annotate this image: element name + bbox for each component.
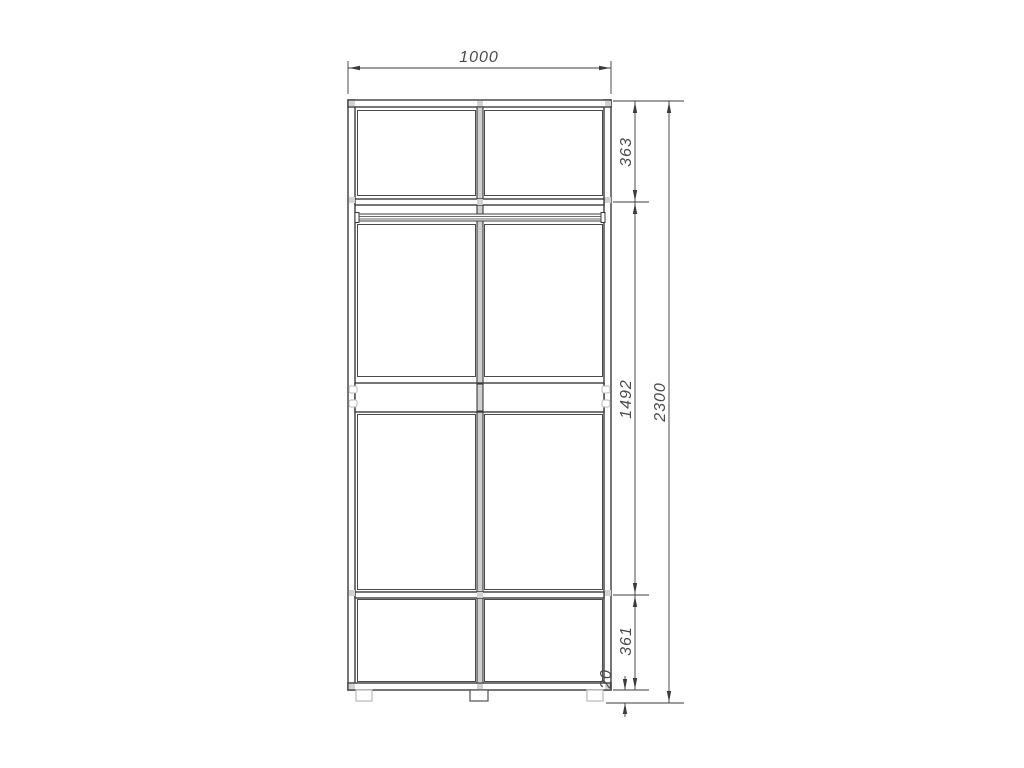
- upper-middle-right-door: [485, 225, 603, 377]
- bottom-left-door: [358, 600, 476, 682]
- rod-bracket-left: [355, 213, 359, 223]
- hinge-icon: [602, 386, 610, 393]
- technical-drawing-canvas: 1000 363 1492 361 20 2300: [0, 0, 1024, 768]
- left-side-panel: [348, 100, 355, 690]
- cabinet-dimension-drawing: 1000 363 1492 361 20 2300: [0, 0, 1024, 768]
- dim-label-top-section: 363: [618, 137, 635, 167]
- right-side-panel: [604, 100, 611, 690]
- lower-middle-left-door: [358, 415, 476, 590]
- right-foot: [587, 690, 603, 701]
- dim-label-middle-section: 1492: [618, 379, 635, 419]
- dim-label-overall-width: 1000: [459, 49, 499, 66]
- rod-bracket-right: [601, 213, 605, 223]
- left-foot: [356, 690, 372, 701]
- cabinet-feet: [356, 690, 603, 701]
- middle-rail-divider-section: [477, 384, 483, 411]
- center-foot: [470, 690, 488, 701]
- dim-label-bottom-section: 361: [618, 626, 635, 656]
- hinge-icon: [349, 386, 357, 393]
- hanging-rod-bar: [357, 214, 603, 221]
- dimension-overall-width: 1000: [348, 49, 611, 94]
- hinge-icon: [602, 400, 610, 407]
- top-right-door: [485, 111, 603, 196]
- hinge-icon: [349, 400, 357, 407]
- bottom-right-door: [485, 600, 603, 682]
- dim-label-overall-height: 2300: [652, 382, 669, 423]
- top-left-door: [358, 111, 476, 196]
- hanging-rod: [355, 213, 605, 223]
- lower-middle-right-door: [485, 415, 603, 590]
- dim-label-foot-height: 20: [598, 669, 615, 690]
- upper-middle-left-door: [358, 225, 476, 377]
